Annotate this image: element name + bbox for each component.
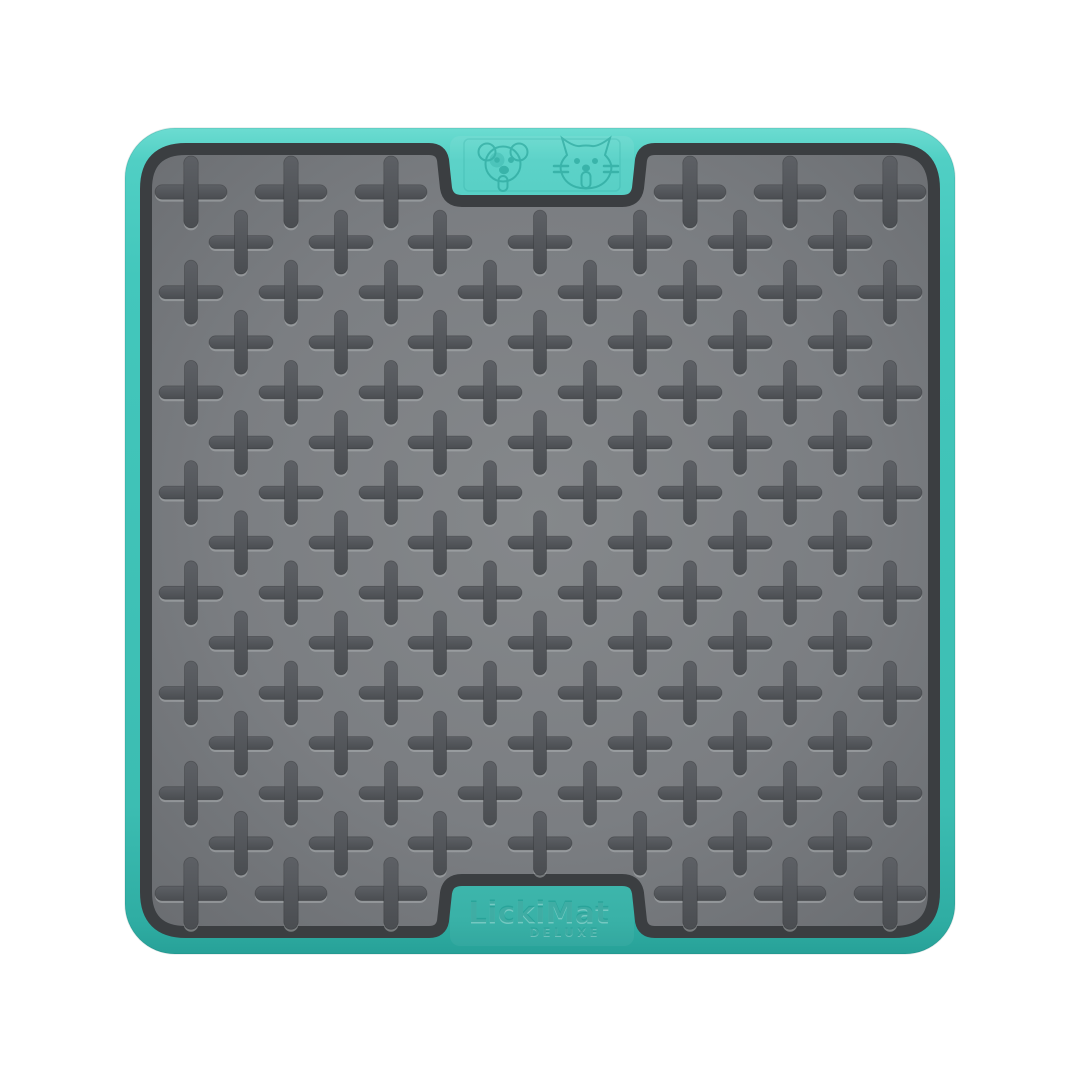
brand-name: LickiMat	[468, 895, 609, 929]
variant-name: DELUXE	[530, 925, 601, 939]
product-photo: LickiMat LickiMat DELUXE DELUXE	[0, 0, 1081, 1080]
lickimat-product-image: LickiMat LickiMat DELUXE DELUXE	[0, 0, 1081, 1080]
